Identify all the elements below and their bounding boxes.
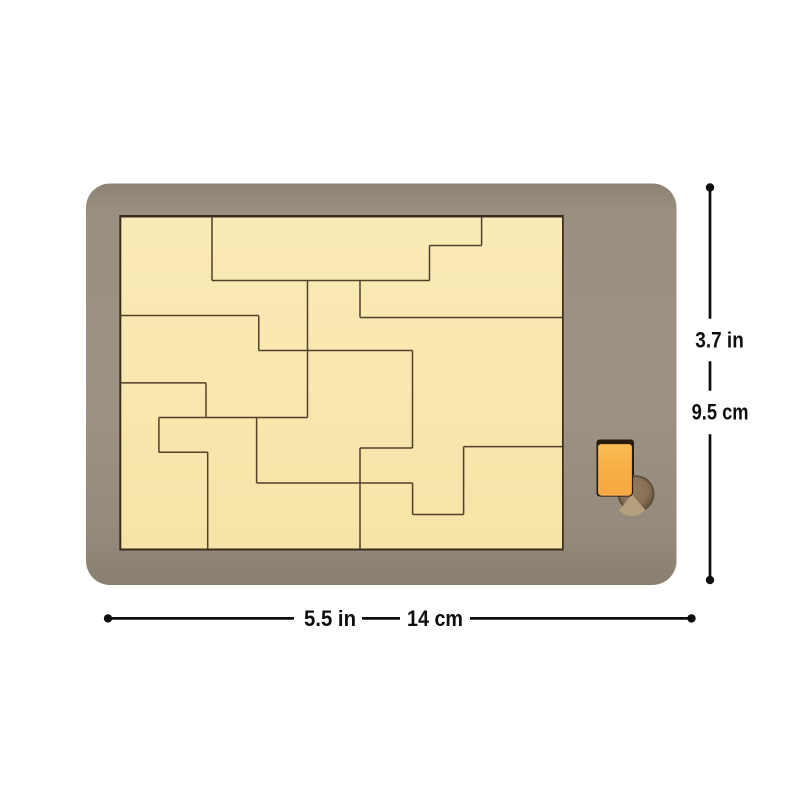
svg-text:9.5 cm: 9.5 cm — [692, 399, 749, 424]
svg-text:14 cm: 14 cm — [407, 606, 463, 631]
svg-text:5.5 in: 5.5 in — [304, 606, 356, 631]
svg-text:3.7 in: 3.7 in — [695, 328, 744, 353]
